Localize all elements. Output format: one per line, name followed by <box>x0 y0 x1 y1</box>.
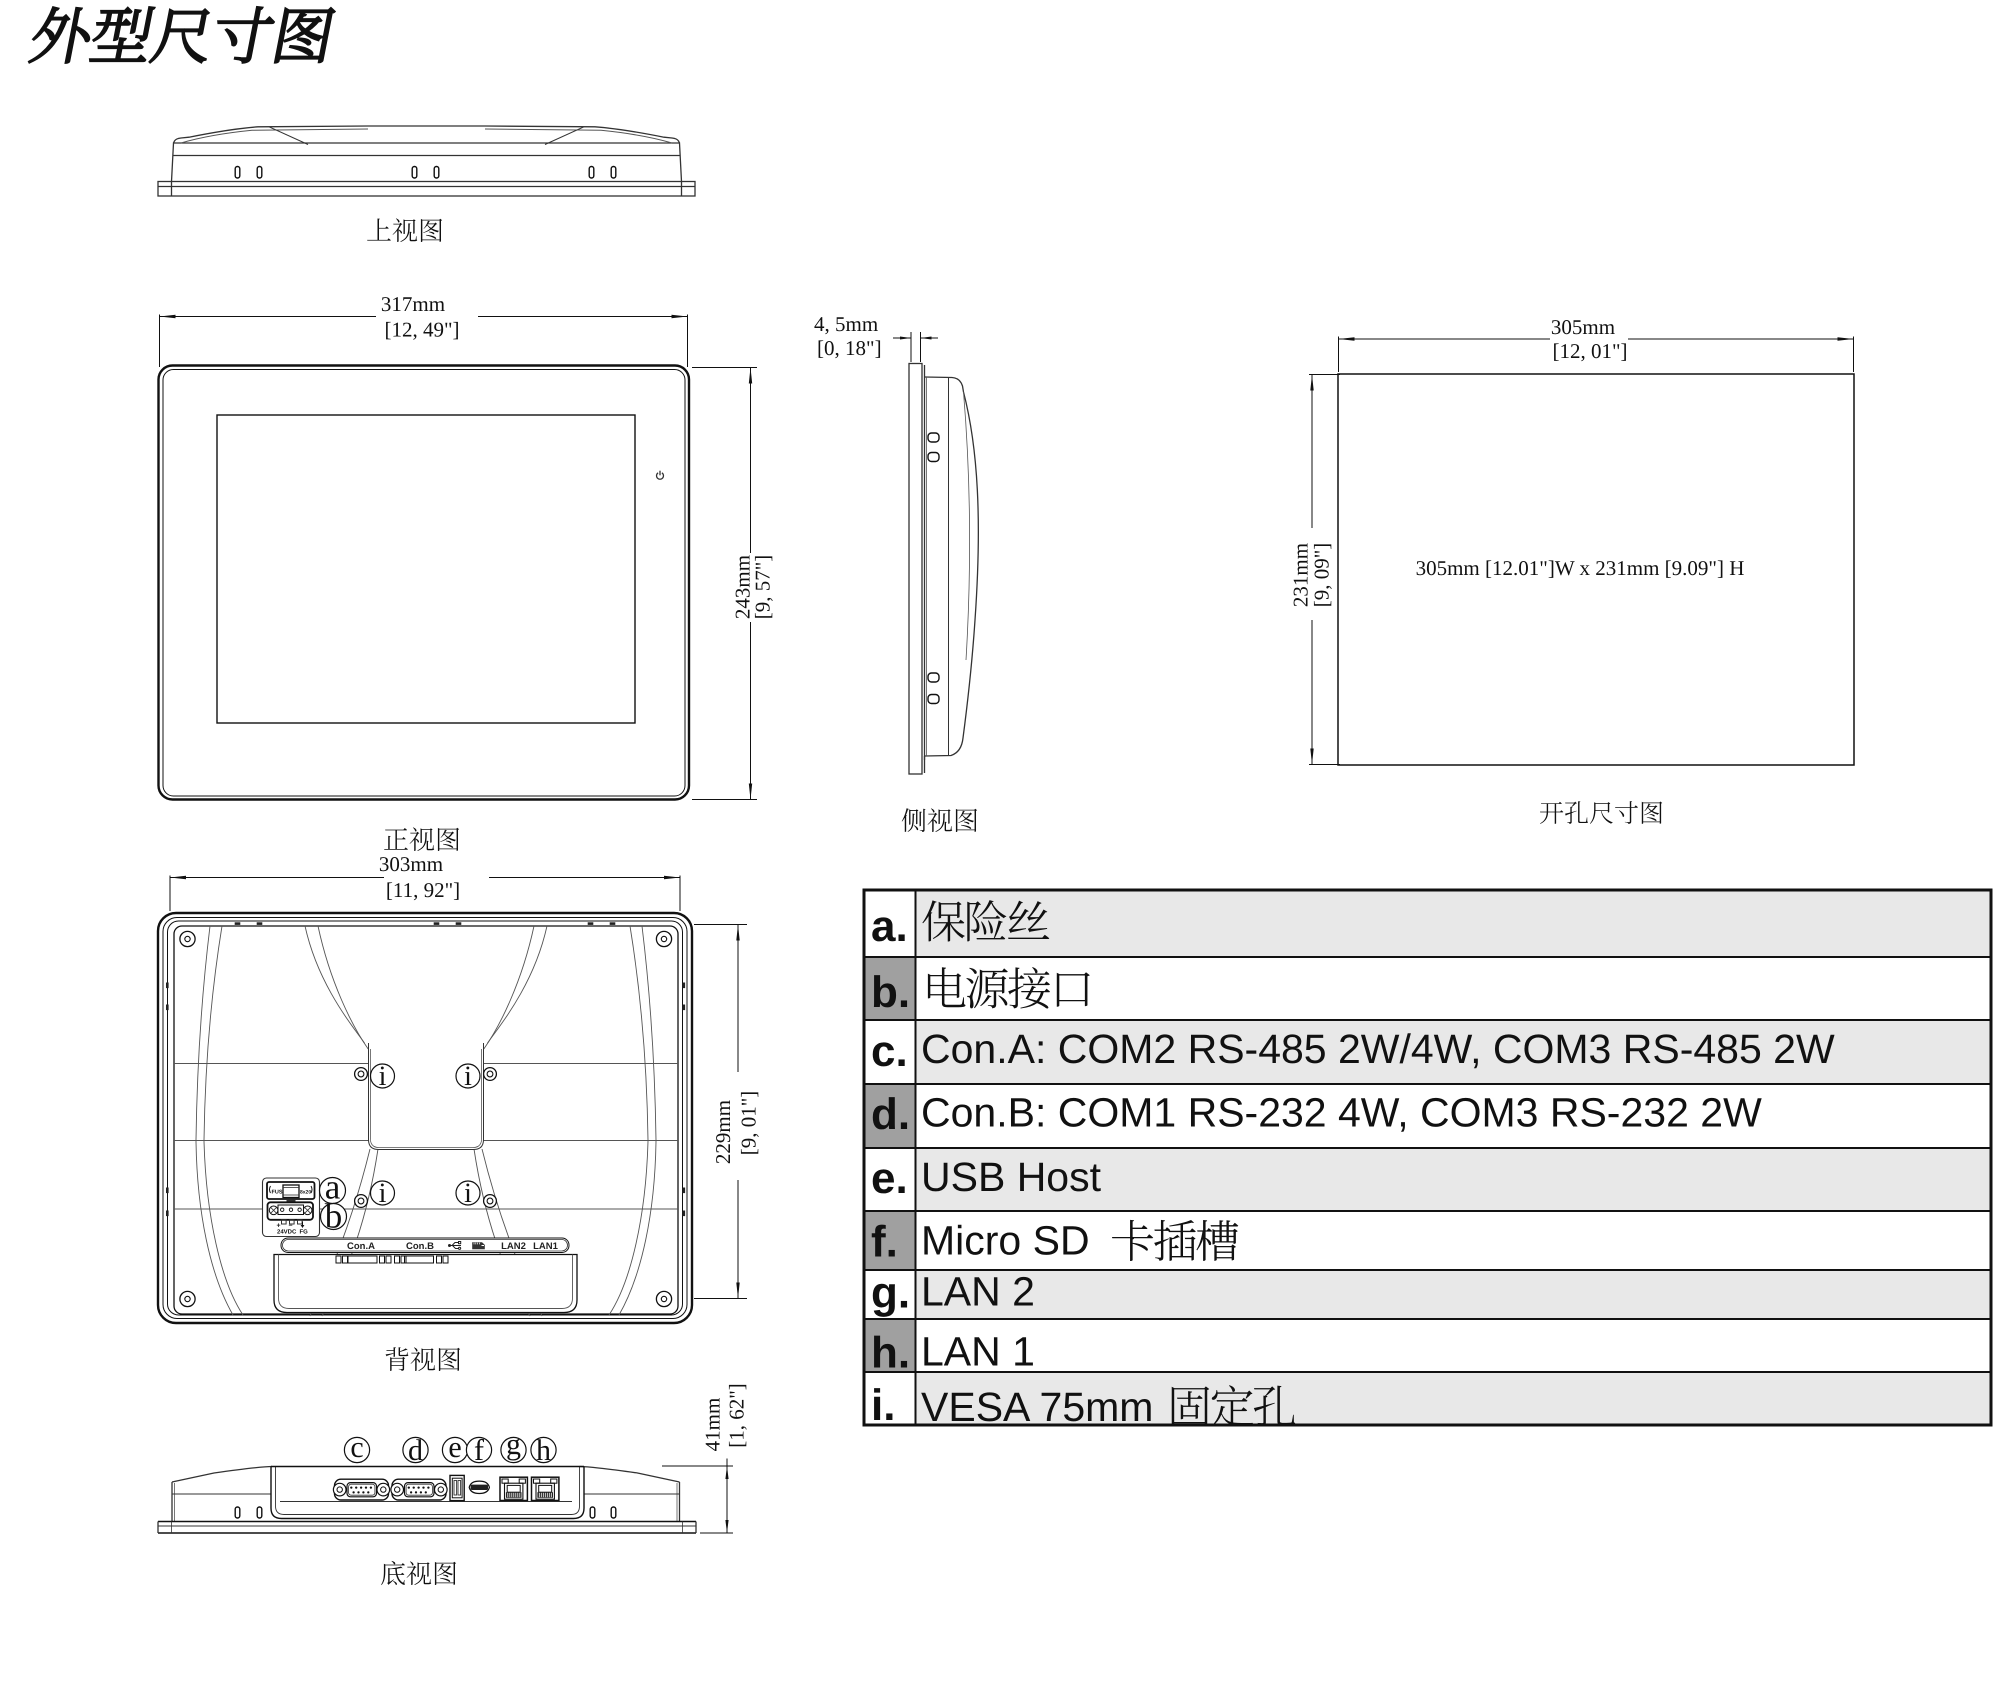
svg-text:i: i <box>464 1061 472 1092</box>
svg-text:LAN 1: LAN 1 <box>921 1329 1035 1375</box>
svg-text:c.: c. <box>871 1027 908 1076</box>
svg-text:8x20: 8x20 <box>300 1190 311 1196</box>
svg-text:305mm: 305mm <box>1551 315 1615 339</box>
svg-text:LAN 2: LAN 2 <box>921 1269 1035 1315</box>
svg-text:Con.B: COM1 RS-232 4W, COM3 RS: Con.B: COM1 RS-232 4W, COM3 RS-232 2W <box>921 1090 1762 1136</box>
svg-text:LAN2: LAN2 <box>501 1241 526 1252</box>
svg-text:e.: e. <box>871 1154 908 1203</box>
svg-text:229mm: 229mm <box>711 1100 735 1164</box>
svg-text:−: − <box>289 1223 293 1230</box>
svg-text:Con.A: COM2 RS-485 2W/4W, COM3: Con.A: COM2 RS-485 2W/4W, COM3 RS-485 2W <box>921 1026 1835 1072</box>
svg-text:i: i <box>379 1178 387 1209</box>
svg-text:[9, 09"]: [9, 09"] <box>1310 543 1334 608</box>
svg-text:f: f <box>474 1434 484 1467</box>
svg-text:c: c <box>350 1431 363 1464</box>
svg-text:b.: b. <box>871 968 910 1017</box>
svg-text:a.: a. <box>871 902 908 951</box>
svg-text:303mm: 303mm <box>379 852 443 876</box>
svg-text:b: b <box>325 1197 343 1236</box>
svg-text:g.: g. <box>871 1269 910 1318</box>
svg-text:[11, 92"]: [11, 92"] <box>386 878 460 902</box>
svg-text:i.: i. <box>871 1381 895 1430</box>
svg-text:[12, 49"]: [12, 49"] <box>384 318 459 342</box>
svg-text:+: + <box>277 1223 281 1230</box>
svg-text:317mm: 317mm <box>381 292 445 316</box>
svg-text:h.: h. <box>871 1329 910 1378</box>
svg-text:[0, 18"]: [0, 18"] <box>817 336 882 360</box>
svg-text:d.: d. <box>871 1090 910 1139</box>
svg-text:e: e <box>448 1431 461 1464</box>
svg-text:FG: FG <box>300 1229 309 1236</box>
svg-text:41mm: 41mm <box>701 1398 725 1452</box>
svg-text:[1, 62"]: [1, 62"] <box>725 1383 749 1448</box>
svg-text:[12, 01"]: [12, 01"] <box>1552 339 1627 363</box>
svg-text:[9, 01"]: [9, 01"] <box>737 1091 761 1156</box>
svg-text:d: d <box>408 1434 423 1467</box>
svg-text:Micro SD: Micro SD <box>921 1218 1090 1264</box>
svg-text:[9, 57"]: [9, 57"] <box>751 555 775 620</box>
svg-text:4, 5mm: 4, 5mm <box>814 312 878 336</box>
svg-text:i: i <box>379 1061 387 1092</box>
svg-text:Con.B: Con.B <box>406 1241 434 1252</box>
svg-text:g: g <box>506 1428 521 1461</box>
svg-text:305mm [12.01"]W x 231mm [9.09": 305mm [12.01"]W x 231mm [9.09"] H <box>1416 556 1745 580</box>
svg-text:i: i <box>464 1178 472 1209</box>
svg-text:LAN1: LAN1 <box>533 1241 559 1252</box>
svg-text:USB Host: USB Host <box>921 1154 1102 1200</box>
svg-text:24VDC: 24VDC <box>277 1229 297 1236</box>
svg-text:f.: f. <box>871 1218 898 1267</box>
svg-text:h: h <box>536 1434 551 1467</box>
svg-text:Con.A: Con.A <box>347 1241 375 1252</box>
svg-text:VESA 75mm: VESA 75mm <box>921 1384 1153 1430</box>
